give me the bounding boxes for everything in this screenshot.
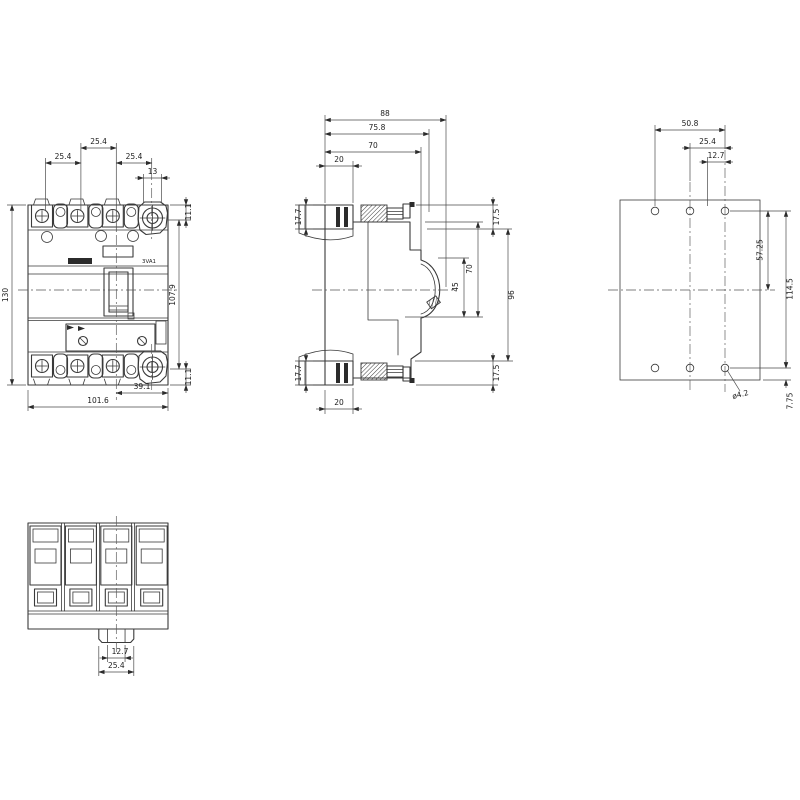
dim-lug-left-bottom: 17.7	[294, 364, 303, 381]
dim-hole-span-h: 50.8	[682, 119, 699, 128]
rear-view: 50.8 25.4 12.7 57.25 114.5 7.75 ø4.2	[608, 119, 795, 409]
side-top-terminal	[299, 202, 415, 240]
terminal-screw-head	[361, 363, 387, 380]
handle-screw	[427, 296, 441, 309]
side-dimensions: 88 75.8 70 20 17.7 17.7 17.5 96 70	[294, 109, 516, 414]
mounting-hole	[651, 364, 659, 372]
toggle-handle	[104, 268, 134, 319]
dim-tab-width: 25.4	[108, 661, 125, 670]
dim-pitch-mid: 25.4	[90, 137, 107, 146]
side-view: 88 75.8 70 20 17.7 17.7 17.5 96 70	[294, 109, 516, 414]
bottom-view: 12.7 25.4	[28, 516, 168, 676]
dim-depth-to-screw: 75.8	[369, 123, 386, 132]
dim-top-step: 20	[334, 155, 344, 164]
dim-hole-pitch: 25.4	[699, 137, 716, 146]
dim-top-offset: 11.1	[184, 203, 193, 220]
dim-hole-to-edge: 7.75	[786, 392, 795, 409]
dim-depth-case: 70	[368, 141, 378, 150]
side-bottom-terminal	[299, 350, 415, 385]
dim-lug-left-top: 17.7	[294, 208, 303, 225]
top-terminal-row	[32, 199, 168, 235]
bottom-dimensions: 12.7 25.4	[99, 645, 134, 676]
rear-centerlines	[608, 150, 775, 392]
escutcheon-arc	[421, 260, 440, 318]
dim-front-span: 70	[465, 264, 474, 274]
dim-hole-half-pitch: 12.7	[708, 151, 725, 160]
dim-pitch-left: 25.4	[55, 152, 72, 161]
dim-clamp-width: 13	[148, 167, 158, 176]
bottom-terminal-row	[32, 351, 168, 385]
dim-handle-to-edge: 39.1	[134, 382, 151, 391]
pole-dividers	[62, 523, 135, 611]
dim-hole-diameter: ø4.2	[731, 388, 750, 401]
rating-window	[103, 246, 133, 257]
bottom-body-outline	[28, 523, 168, 629]
dim-bottom-step: 20	[334, 398, 344, 407]
dimension-drawing-sheet: 3VA1	[0, 0, 800, 800]
dim-case-span: 96	[507, 290, 516, 300]
rating-badge	[68, 258, 92, 264]
terminal-screw-head	[361, 205, 387, 222]
dim-terminal-span: 107.9	[168, 284, 177, 306]
dim-hole-span-v: 114.5	[786, 278, 795, 300]
dim-body-width: 101.6	[87, 396, 109, 405]
dim-hole-to-center: 57.25	[756, 239, 765, 261]
dim-lug-right-bottom: 17.5	[492, 364, 501, 381]
front-view: 3VA1	[1, 137, 193, 411]
dim-slot-width: 12.7	[112, 647, 129, 656]
dim-lug-right-top: 17.5	[492, 208, 501, 225]
dim-depth-total: 88	[380, 109, 390, 118]
drawing-canvas: 3VA1	[0, 0, 800, 800]
side-profile	[325, 205, 440, 385]
dim-body-height: 130	[1, 288, 10, 303]
dim-pitch-right: 25.4	[126, 152, 143, 161]
product-label: 3VA1	[142, 259, 156, 265]
dim-handle-span: 45	[451, 282, 460, 292]
front-mid-features: 3VA1	[42, 231, 156, 266]
bottom-clamp-terminal	[138, 351, 168, 384]
dim-bottom-offset: 11.1	[184, 368, 193, 385]
mounting-hole	[651, 207, 659, 215]
pole-modules	[30, 526, 167, 606]
